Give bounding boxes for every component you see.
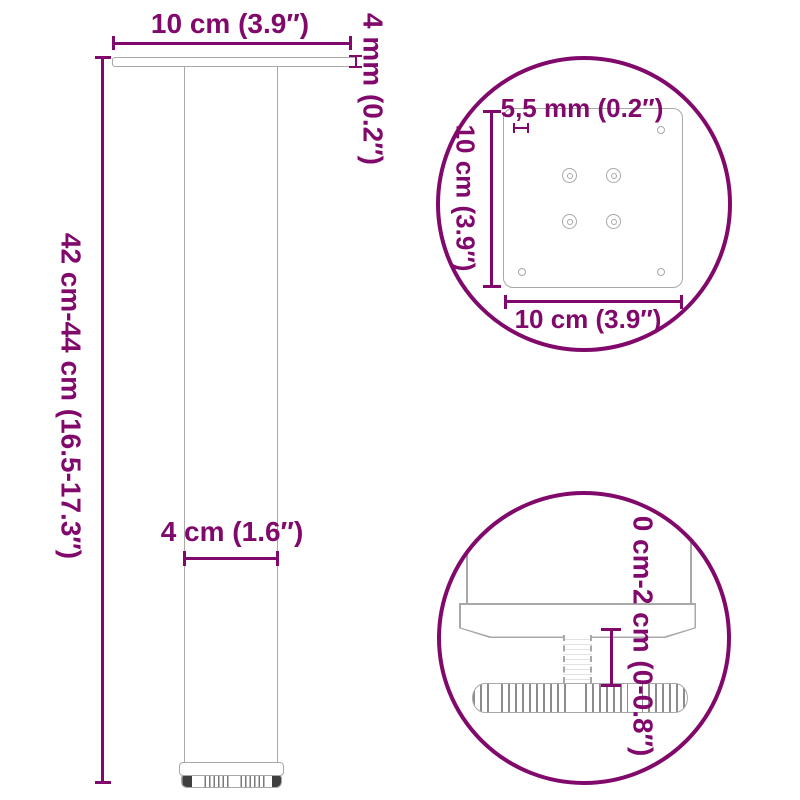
hole-diameter-dimension-label: 5,5 mm (0.2″) xyxy=(501,95,664,122)
dimension-tick xyxy=(483,285,501,288)
dimension-tick xyxy=(504,295,507,309)
adjustment-dimension-label: 0 cm-2 cm (0-0.8″) xyxy=(628,516,657,757)
knurl-gap xyxy=(192,776,203,787)
dimension-tick xyxy=(680,295,683,309)
hole-diameter-bracket-line xyxy=(514,127,528,129)
plate-width-detail-dimension-label: 10 cm (3.9″) xyxy=(515,306,662,333)
plate-width-dimension-line xyxy=(113,42,351,45)
knurl-segment xyxy=(183,776,192,787)
foot-detail-circle xyxy=(437,491,731,785)
dimension-tick xyxy=(601,628,621,631)
dimension-tick xyxy=(513,123,515,133)
tube-diameter-dimension-line xyxy=(184,557,279,560)
plate-depth-dimension-line xyxy=(490,111,493,287)
adjustment-dimension-line xyxy=(610,630,613,687)
foot-cap xyxy=(179,762,284,776)
mounting-plate xyxy=(112,57,357,67)
dimension-tick xyxy=(112,36,115,50)
tube-diameter-dimension-label: 4 cm (1.6″) xyxy=(161,517,304,546)
knurl-segment xyxy=(272,776,281,787)
dimension-tick xyxy=(95,56,111,59)
foot-knurled-ring xyxy=(181,775,282,788)
plate-depth-dimension-label: 10 cm (3.9″) xyxy=(451,125,478,272)
dimension-tick xyxy=(601,684,621,687)
dimension-tick xyxy=(95,781,111,784)
leg-height-dimension-label: 42 cm-44 cm (16.5-17.3″) xyxy=(56,233,85,559)
dimension-diagram: 10 cm (3.9″) 4 mm (0.2″) 42 cm-44 cm (16… xyxy=(0,0,800,800)
dimension-tick xyxy=(483,110,501,113)
plate-width-dimension-label: 10 cm (3.9″) xyxy=(151,9,309,38)
leg-height-dimension-line xyxy=(101,57,104,783)
plate-width-detail-dimension-line xyxy=(506,300,682,303)
dimension-tick xyxy=(183,551,186,566)
dimension-tick xyxy=(527,123,529,133)
leg-tube xyxy=(184,66,278,762)
dimension-tick xyxy=(276,551,279,566)
knurl-gap xyxy=(229,776,240,787)
plate-thickness-dimension-label: 4 mm (0.2″) xyxy=(358,13,387,165)
dimension-tick xyxy=(349,36,352,50)
